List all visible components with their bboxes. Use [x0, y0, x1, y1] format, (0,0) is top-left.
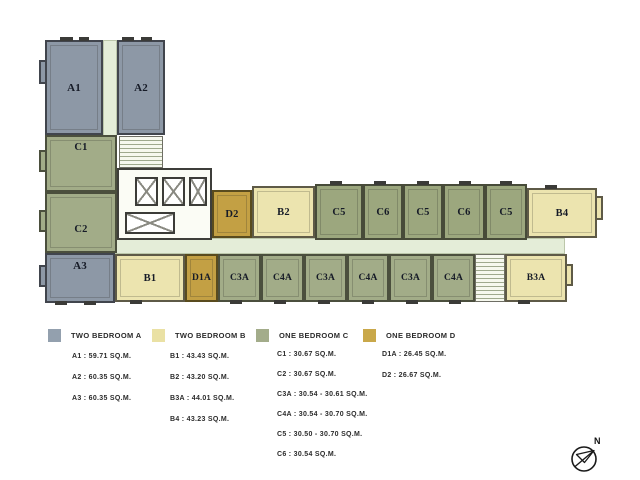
unit-a1: A1	[45, 40, 103, 135]
unit-label: A1	[67, 82, 81, 94]
area-list-one-bedroom-c: C1 : 30.67 SQ.M. C2 : 30.67 SQ.M. C3A : …	[277, 351, 368, 471]
legend-swatch-a	[48, 329, 61, 342]
window-tick	[374, 181, 386, 185]
window-tick	[518, 300, 530, 304]
legend-swatch-d	[363, 329, 376, 342]
window-tick	[141, 37, 152, 41]
window-tick	[406, 300, 418, 304]
unit-label: C3A	[230, 273, 249, 283]
unit-c6-2: C6	[443, 184, 485, 240]
north-label: N	[594, 436, 601, 446]
unit-label: C2	[74, 224, 87, 235]
window-tick	[330, 181, 342, 185]
window-tick	[545, 185, 557, 189]
window-tick	[417, 181, 429, 185]
window-tick	[84, 301, 96, 305]
unit-label: C1	[74, 142, 87, 153]
legend-label: ONE BEDROOM D	[386, 331, 456, 340]
window-tick	[274, 300, 286, 304]
area-row: B3A : 44.01 SQ.M.	[170, 395, 234, 403]
unit-a3: A3	[45, 253, 115, 303]
unit-c3a-1: C3A	[218, 254, 261, 302]
area-row: C6 : 30.54 SQ.M.	[277, 451, 368, 459]
unit-label: B2	[277, 207, 290, 218]
legend-swatch-b	[152, 329, 165, 342]
unit-label: C4A	[358, 273, 377, 283]
legend-item-two-bedroom-a: TWO BEDROOM A	[48, 329, 142, 342]
area-row: D2 : 26.67 SQ.M.	[382, 372, 446, 380]
legend-item-one-bedroom-c: ONE BEDROOM C	[256, 329, 349, 342]
elevator-shaft-icon	[189, 177, 207, 206]
area-list-two-bedroom-a: A1 : 59.71 SQ.M. A2 : 60.35 SQ.M. A3 : 6…	[72, 353, 131, 416]
unit-label: C5	[332, 207, 345, 218]
unit-c3a-2: C3A	[304, 254, 347, 302]
window-tick	[60, 37, 73, 41]
unit-c5-1: C5	[315, 184, 363, 240]
window-tick	[449, 300, 461, 304]
legend-swatch-c	[256, 329, 269, 342]
unit-label: D2	[225, 209, 238, 220]
unit-c5-3: C5	[485, 184, 527, 240]
unit-c4a-1: C4A	[261, 254, 304, 302]
unit-d2: D2	[212, 190, 252, 238]
unit-b4: B4	[527, 188, 597, 238]
unit-label: C5	[416, 207, 429, 218]
unit-b1: B1	[115, 254, 185, 302]
legend-item-one-bedroom-d: ONE BEDROOM D	[363, 329, 456, 342]
area-row: C1 : 30.67 SQ.M.	[277, 351, 368, 359]
interior-walls	[50, 197, 112, 248]
area-row: C2 : 30.67 SQ.M.	[277, 371, 368, 379]
window-tick	[500, 181, 512, 185]
unit-c4a-3: C4A	[432, 254, 475, 302]
area-row: B1 : 43.43 SQ.M.	[170, 353, 234, 361]
window-tick	[459, 181, 471, 185]
window-tick	[362, 300, 374, 304]
area-row: B4 : 43.23 SQ.M.	[170, 416, 234, 424]
corridor-horizontal	[100, 238, 565, 254]
unit-c1: C1	[45, 135, 117, 192]
elevator-core	[117, 168, 212, 240]
unit-c6-1: C6	[363, 184, 403, 240]
area-row: A2 : 60.35 SQ.M.	[72, 374, 131, 382]
unit-label: D1A	[192, 273, 211, 283]
service-room-icon	[125, 212, 175, 234]
area-row: A3 : 60.35 SQ.M.	[72, 395, 131, 403]
legend-label: ONE BEDROOM C	[279, 331, 349, 340]
unit-c5-2: C5	[403, 184, 443, 240]
unit-label: B1	[144, 273, 157, 284]
unit-label: B4	[556, 208, 569, 219]
unit-c3a-3: C3A	[389, 254, 432, 302]
unit-c4a-2: C4A	[347, 254, 389, 302]
legend-item-two-bedroom-b: TWO BEDROOM B	[152, 329, 246, 342]
area-row: C3A : 30.54 - 30.61 SQ.M.	[277, 391, 368, 399]
stairwell-upper	[119, 136, 163, 168]
unit-label: C4A	[444, 273, 463, 283]
unit-label: C6	[457, 207, 470, 218]
legend-label: TWO BEDROOM A	[71, 331, 142, 340]
unit-label: A3	[73, 260, 87, 272]
area-row: C4A : 30.54 - 30.70 SQ.M.	[277, 411, 368, 419]
floor-plan-page: A1 A2 C1 C2 A3 D2 B2 C5 C6 C5 C6	[0, 0, 640, 480]
north-compass-icon	[570, 444, 600, 479]
window-tick	[230, 300, 242, 304]
unit-b3a: B3A	[505, 254, 567, 302]
elevator-shaft-icon	[135, 177, 158, 206]
window-tick	[130, 300, 142, 304]
area-list-one-bedroom-d: D1A : 26.45 SQ.M. D2 : 26.67 SQ.M.	[382, 351, 446, 393]
area-row: B2 : 43.20 SQ.M.	[170, 374, 234, 382]
window-tick	[79, 37, 89, 41]
window-tick	[55, 301, 67, 305]
unit-label: C5	[499, 207, 512, 218]
unit-b2: B2	[252, 186, 315, 238]
unit-a2: A2	[117, 40, 165, 135]
area-row: D1A : 26.45 SQ.M.	[382, 351, 446, 359]
area-row: A1 : 59.71 SQ.M.	[72, 353, 131, 361]
window-tick	[318, 300, 330, 304]
unit-c2: C2	[45, 192, 117, 253]
stairwell-lower	[475, 254, 505, 302]
unit-label: C3A	[316, 273, 335, 283]
area-list-two-bedroom-b: B1 : 43.43 SQ.M. B2 : 43.20 SQ.M. B3A : …	[170, 353, 234, 437]
window-tick	[122, 37, 134, 41]
legend-label: TWO BEDROOM B	[175, 331, 246, 340]
unit-label: B3A	[527, 273, 546, 283]
unit-label: C3A	[401, 273, 420, 283]
area-row: C5 : 30.50 - 30.70 SQ.M.	[277, 431, 368, 439]
unit-label: A2	[134, 82, 148, 94]
elevator-shaft-icon	[162, 177, 185, 206]
unit-label: C4A	[273, 273, 292, 283]
unit-d1a: D1A	[185, 254, 218, 302]
unit-label: C6	[376, 207, 389, 218]
